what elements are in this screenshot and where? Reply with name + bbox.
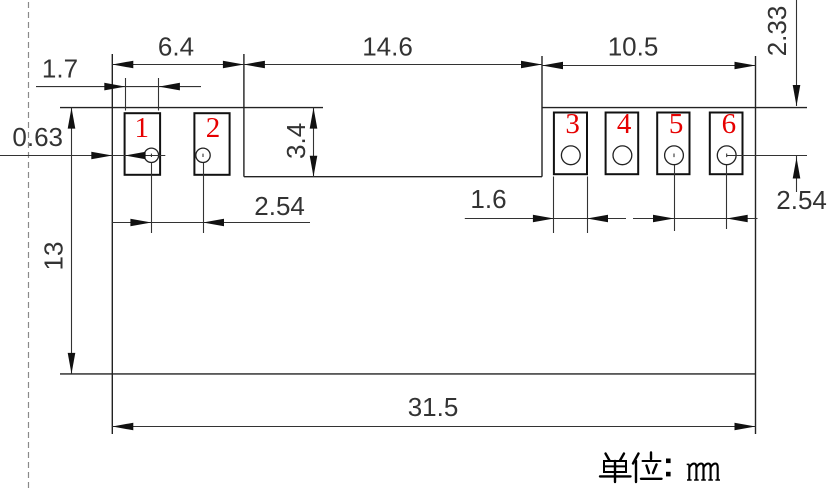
svg-text:31.5: 31.5 (408, 392, 459, 422)
svg-text:5: 5 (669, 108, 684, 140)
svg-text:3: 3 (565, 108, 580, 140)
svg-text:1.6: 1.6 (470, 184, 506, 214)
svg-text:1: 1 (135, 112, 150, 144)
svg-text:6.4: 6.4 (158, 32, 194, 62)
svg-text:2.33: 2.33 (762, 6, 792, 57)
svg-text:0.63: 0.63 (12, 122, 63, 152)
svg-text:2.54: 2.54 (254, 191, 305, 221)
svg-text:3.4: 3.4 (281, 123, 311, 159)
svg-text:10.5: 10.5 (608, 32, 659, 62)
svg-text:2.54: 2.54 (776, 185, 827, 215)
svg-text:2: 2 (206, 112, 221, 144)
svg-text:1.7: 1.7 (42, 54, 78, 84)
svg-text:13: 13 (39, 242, 69, 271)
svg-text:4: 4 (617, 108, 632, 140)
svg-text:6: 6 (722, 108, 737, 140)
svg-text:14.6: 14.6 (362, 32, 413, 62)
